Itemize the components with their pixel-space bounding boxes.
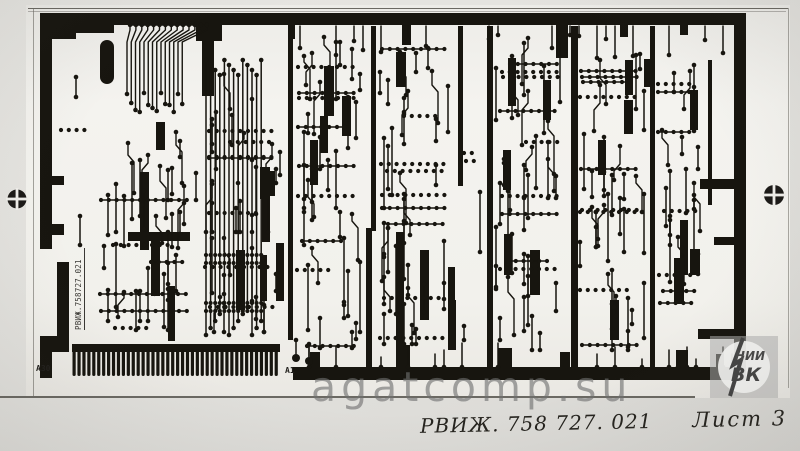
registration-mark-right bbox=[762, 183, 786, 207]
logo-text-vk: ВК bbox=[731, 364, 762, 386]
board-doc-number-vertical: РВИЖ.758727.021 bbox=[74, 248, 85, 330]
logo-text-nii: НИИ bbox=[735, 349, 765, 363]
caption-doc-number: РВИЖ. 758 727. 021 bbox=[420, 409, 653, 438]
watermark-agatcomp: agatcomp.su bbox=[311, 363, 632, 411]
photo-of-pcb-artwork: А30 А1 РВИЖ.758727.021 agatcomp.su НИИ В… bbox=[0, 0, 800, 451]
registration-mark-left bbox=[6, 188, 28, 210]
connector-label-a1: А1 bbox=[285, 366, 295, 375]
caption-sheet-label: Лист 3 bbox=[692, 406, 787, 432]
watermark-nii-vk-logo: НИИ ВК bbox=[710, 336, 778, 398]
connector-label-a30: А30 bbox=[36, 364, 50, 373]
